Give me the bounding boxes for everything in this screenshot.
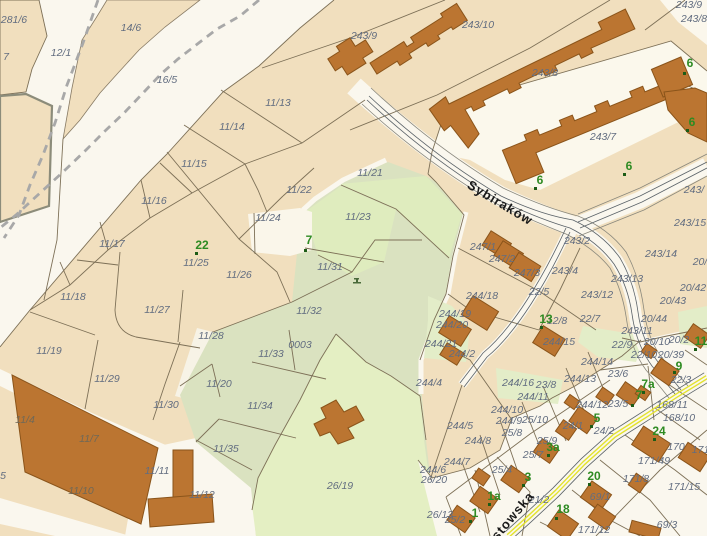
svg-text:243/9: 243/9 xyxy=(675,0,702,11)
svg-text:11/7: 11/7 xyxy=(79,433,100,445)
svg-text:244/18: 244/18 xyxy=(465,290,498,302)
svg-text:11/22: 11/22 xyxy=(286,184,312,196)
svg-text:6: 6 xyxy=(537,173,544,187)
svg-text:244/12: 244/12 xyxy=(575,399,608,411)
svg-text:20/42: 20/42 xyxy=(679,282,706,294)
svg-text:243/10: 243/10 xyxy=(461,19,494,31)
svg-text:25/2: 25/2 xyxy=(444,514,466,526)
svg-text:244/16: 244/16 xyxy=(501,377,534,389)
svg-text:247/1: 247/1 xyxy=(469,241,496,253)
svg-text:11/27: 11/27 xyxy=(144,304,171,316)
svg-text:11/15: 11/15 xyxy=(181,158,207,170)
svg-text:11/25: 11/25 xyxy=(183,257,209,269)
svg-text:243/14: 243/14 xyxy=(644,248,677,260)
svg-text:22/3: 22/3 xyxy=(670,374,692,386)
svg-text:25/7: 25/7 xyxy=(522,449,545,461)
svg-text:11/24: 11/24 xyxy=(255,212,281,224)
svg-text:11/21: 11/21 xyxy=(357,167,383,179)
svg-text:1a: 1a xyxy=(487,489,501,503)
svg-text:12/1: 12/1 xyxy=(51,47,71,59)
svg-text:11/19: 11/19 xyxy=(36,345,62,357)
svg-text:11: 11 xyxy=(695,334,707,348)
svg-text:171/8: 171/8 xyxy=(623,473,649,485)
svg-text:16/5: 16/5 xyxy=(157,74,178,86)
svg-text:1: 1 xyxy=(472,506,479,520)
svg-text:11/23: 11/23 xyxy=(345,211,371,223)
svg-text:11/34: 11/34 xyxy=(247,400,273,412)
svg-text:20/43: 20/43 xyxy=(659,295,686,307)
svg-text:168/10: 168/10 xyxy=(663,412,695,424)
svg-text:22: 22 xyxy=(195,238,209,252)
svg-text:11/32: 11/32 xyxy=(296,305,322,317)
svg-text:14/6: 14/6 xyxy=(121,22,142,34)
svg-text:24/2: 24/2 xyxy=(593,425,615,437)
svg-text:171/49: 171/49 xyxy=(638,455,670,467)
svg-text:243/8: 243/8 xyxy=(531,67,558,79)
svg-text:0003: 0003 xyxy=(288,339,312,351)
svg-text:26/20: 26/20 xyxy=(420,474,447,486)
svg-text:69/1: 69/1 xyxy=(590,491,610,503)
svg-text:11/14: 11/14 xyxy=(219,121,245,133)
svg-text:244/13: 244/13 xyxy=(563,373,596,385)
svg-text:11/26: 11/26 xyxy=(226,269,252,281)
svg-text:243/13: 243/13 xyxy=(610,273,643,285)
svg-text:11/29: 11/29 xyxy=(94,373,120,385)
svg-text:244/9: 244/9 xyxy=(495,415,522,427)
svg-text:11/35: 11/35 xyxy=(213,443,239,455)
svg-text:171/: 171/ xyxy=(692,444,707,456)
svg-text:243/9: 243/9 xyxy=(350,30,377,42)
svg-text:7a: 7a xyxy=(641,377,655,391)
svg-text:11/12: 11/12 xyxy=(189,489,215,501)
svg-text:3a: 3a xyxy=(546,440,560,454)
svg-text:23/5: 23/5 xyxy=(607,398,629,410)
svg-text:244/11: 244/11 xyxy=(516,391,548,403)
svg-text:244/7: 244/7 xyxy=(443,456,471,468)
svg-text:11/18: 11/18 xyxy=(60,291,86,303)
svg-text:11/10: 11/10 xyxy=(68,485,94,497)
svg-text:11/16: 11/16 xyxy=(141,195,167,207)
svg-text:23/6: 23/6 xyxy=(607,368,629,380)
svg-text:6: 6 xyxy=(687,56,694,70)
svg-text:243/2: 243/2 xyxy=(563,235,590,247)
svg-text:18: 18 xyxy=(556,502,570,516)
svg-text:13: 13 xyxy=(539,312,553,326)
svg-text:26/19: 26/19 xyxy=(326,480,353,492)
svg-text:22/10: 22/10 xyxy=(630,349,657,361)
svg-text:22/7: 22/7 xyxy=(579,313,602,325)
svg-text:22/5: 22/5 xyxy=(528,286,550,298)
svg-text:6: 6 xyxy=(689,115,696,129)
svg-text:170: 170 xyxy=(667,441,685,453)
svg-text:25/4: 25/4 xyxy=(491,464,513,476)
svg-text:247/2: 247/2 xyxy=(488,253,515,265)
svg-text:11/13: 11/13 xyxy=(265,97,291,109)
svg-text:11/33: 11/33 xyxy=(258,348,284,360)
svg-text:244/15: 244/15 xyxy=(542,336,575,348)
svg-text:168/11: 168/11 xyxy=(656,399,687,411)
svg-text:243/8: 243/8 xyxy=(680,13,707,25)
svg-text:244/20: 244/20 xyxy=(435,319,468,331)
svg-text:69/3: 69/3 xyxy=(657,519,678,531)
svg-text:24/1: 24/1 xyxy=(562,420,583,432)
svg-text:3: 3 xyxy=(525,470,532,484)
svg-text:11/20: 11/20 xyxy=(206,378,232,390)
svg-text:11/17: 11/17 xyxy=(99,238,126,250)
svg-text:20/2: 20/2 xyxy=(668,334,690,346)
svg-text:20: 20 xyxy=(587,469,601,483)
svg-text:171/12: 171/12 xyxy=(578,524,610,536)
svg-text:244/4: 244/4 xyxy=(415,377,442,389)
svg-text:11/28: 11/28 xyxy=(198,330,224,342)
svg-text:6: 6 xyxy=(626,159,633,173)
svg-text:171/15: 171/15 xyxy=(668,481,700,493)
svg-text:20/10: 20/10 xyxy=(643,336,670,348)
svg-text:247/3: 247/3 xyxy=(513,267,540,279)
svg-text:243/4: 243/4 xyxy=(551,265,578,277)
svg-text:20/: 20/ xyxy=(692,256,707,268)
svg-text:5: 5 xyxy=(0,470,6,482)
svg-text:244/5: 244/5 xyxy=(446,420,473,432)
svg-text:244/2: 244/2 xyxy=(448,348,475,360)
svg-text:5: 5 xyxy=(594,411,601,425)
svg-text:20/44: 20/44 xyxy=(640,313,667,325)
svg-text:9: 9 xyxy=(676,359,683,373)
svg-text:11/31: 11/31 xyxy=(317,261,343,273)
svg-text:244/14: 244/14 xyxy=(580,356,613,368)
svg-text:11/11: 11/11 xyxy=(145,465,170,477)
svg-text:243/15: 243/15 xyxy=(673,217,706,229)
svg-text:25/8: 25/8 xyxy=(501,427,523,439)
svg-text:24: 24 xyxy=(652,424,666,438)
svg-text:7: 7 xyxy=(306,233,313,247)
svg-text:11/30: 11/30 xyxy=(153,399,179,411)
svg-text:23/8: 23/8 xyxy=(535,379,557,391)
svg-text:281/6: 281/6 xyxy=(0,14,27,26)
svg-text:244/8: 244/8 xyxy=(464,435,491,447)
svg-text:243/7: 243/7 xyxy=(589,131,617,143)
svg-text:22/9: 22/9 xyxy=(611,339,633,351)
svg-text:243/12: 243/12 xyxy=(580,289,613,301)
svg-text:11/4: 11/4 xyxy=(15,414,35,426)
svg-text:25/10: 25/10 xyxy=(521,414,548,426)
svg-text:243/: 243/ xyxy=(683,184,706,196)
